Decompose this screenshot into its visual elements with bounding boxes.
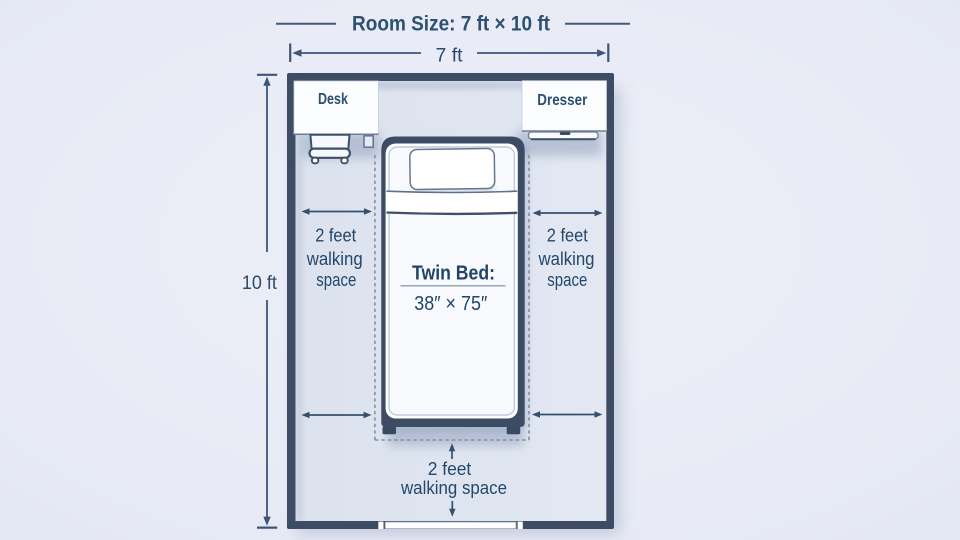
svg-text:Room Size: 7 ft × 10 ft: Room Size: 7 ft × 10 ft <box>352 12 550 36</box>
svg-text:38″ × 75″: 38″ × 75″ <box>414 293 487 315</box>
svg-text:space: space <box>547 269 587 290</box>
svg-text:2 feet: 2 feet <box>547 224 588 245</box>
svg-text:2 feet: 2 feet <box>315 225 356 246</box>
svg-text:walking: walking <box>538 248 595 269</box>
svg-text:Dresser: Dresser <box>537 92 587 109</box>
svg-text:walking space: walking space <box>400 477 507 498</box>
svg-text:7 ft: 7 ft <box>436 45 464 66</box>
svg-text:Desk: Desk <box>318 91 348 108</box>
svg-text:10 ft: 10 ft <box>242 272 278 294</box>
svg-text:Twin Bed:: Twin Bed: <box>412 263 495 285</box>
svg-text:walking: walking <box>306 248 363 269</box>
svg-text:space: space <box>316 269 356 290</box>
